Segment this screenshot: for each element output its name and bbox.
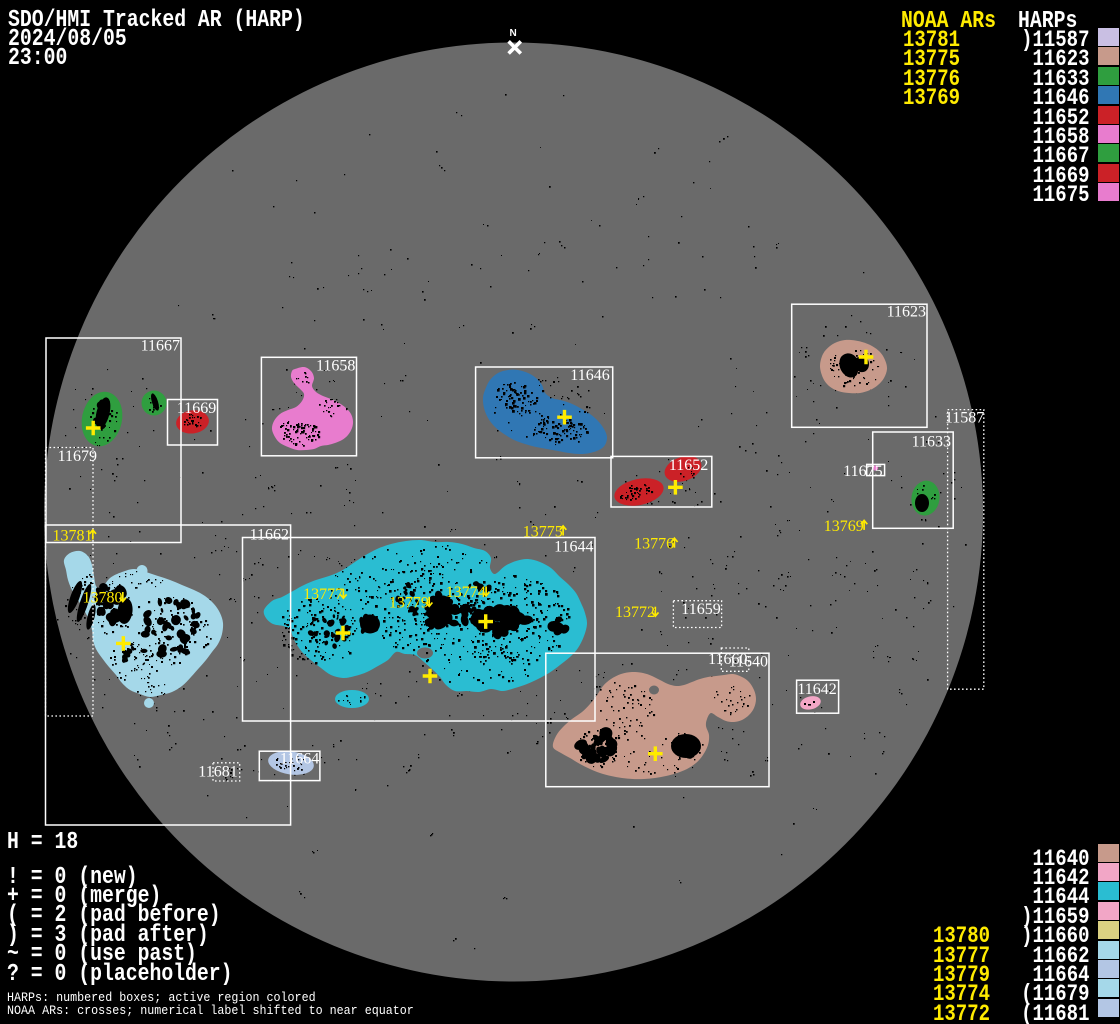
svg-text:11667: 11667 bbox=[141, 337, 180, 354]
svg-text:11587: 11587 bbox=[945, 410, 984, 427]
svg-text:N: N bbox=[510, 28, 517, 39]
svg-text:11623: 11623 bbox=[887, 303, 926, 320]
svg-text:11646: 11646 bbox=[570, 367, 609, 384]
svg-text:11652: 11652 bbox=[669, 457, 708, 474]
svg-text:11662: 11662 bbox=[250, 526, 289, 543]
svg-text:13779: 13779 bbox=[389, 594, 429, 611]
svg-text:13772: 13772 bbox=[615, 604, 655, 621]
svg-text:13774: 13774 bbox=[446, 584, 486, 601]
svg-text:11644: 11644 bbox=[554, 538, 593, 555]
svg-text:13777: 13777 bbox=[303, 586, 343, 603]
svg-text:13776: 13776 bbox=[634, 536, 674, 553]
svg-text:11679: 11679 bbox=[58, 448, 97, 465]
svg-text:13780: 13780 bbox=[83, 590, 123, 607]
svg-text:11681: 11681 bbox=[198, 764, 237, 781]
svg-text:13781: 13781 bbox=[53, 528, 93, 545]
svg-text:13769: 13769 bbox=[824, 518, 864, 535]
svg-text:11633: 11633 bbox=[912, 433, 951, 450]
svg-text:11658: 11658 bbox=[316, 358, 355, 375]
svg-text:13775: 13775 bbox=[523, 524, 563, 541]
svg-text:11640: 11640 bbox=[729, 653, 768, 670]
svg-text:11669: 11669 bbox=[177, 400, 216, 417]
svg-text:11675: 11675 bbox=[843, 463, 882, 480]
svg-text:11642: 11642 bbox=[797, 681, 836, 698]
svg-text:11664: 11664 bbox=[280, 751, 319, 768]
svg-text:11659: 11659 bbox=[681, 601, 720, 618]
